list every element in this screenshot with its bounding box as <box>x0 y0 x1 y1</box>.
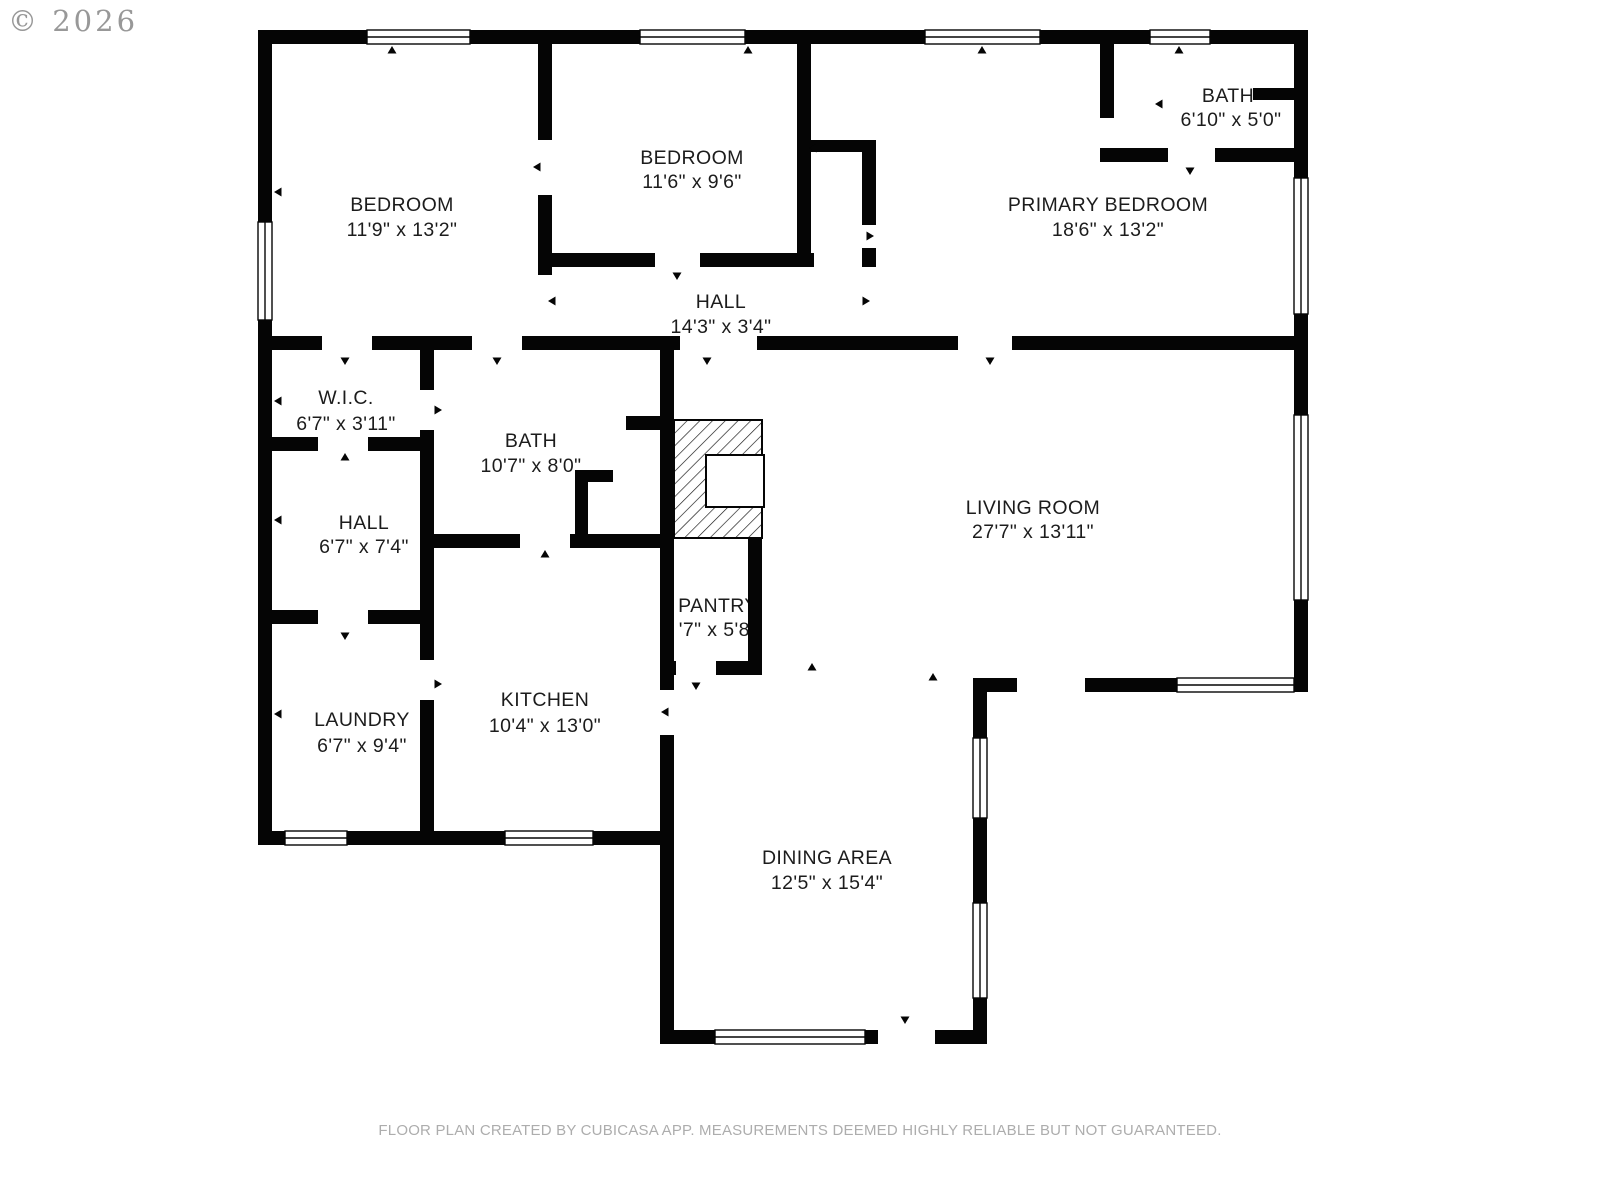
room-name: KITCHEN <box>501 689 589 711</box>
room-dims: 11'9" x 13'2" <box>347 219 458 241</box>
wall <box>660 1030 715 1044</box>
wall <box>935 1030 987 1044</box>
wall <box>1215 148 1308 162</box>
wall <box>748 538 762 675</box>
room-label-primary-bedroom: PRIMARY BEDROOM 18'6" x 13'2" <box>1008 194 1208 241</box>
room-name: BATH <box>1202 85 1254 107</box>
window <box>715 1030 865 1044</box>
room-label-hall-lower: HALL 6'7" x 7'4" <box>319 512 409 558</box>
wall <box>420 700 434 831</box>
room-dims: 27'7" x 13'11" <box>972 521 1094 543</box>
room-label-laundry: LAUNDRY 6'7" x 9'4" <box>314 709 410 757</box>
floor-plan-page: © 2026 BEDROOM 11'9" x 13'2" BEDROOM 11'… <box>0 0 1600 1200</box>
room-label-living-room: LIVING ROOM 27'7" x 13'11" <box>966 497 1100 543</box>
room-name: PRIMARY BEDROOM <box>1008 194 1208 216</box>
room-name: BEDROOM <box>640 147 744 169</box>
wall <box>258 610 318 624</box>
room-dims: '7" x 5'8" <box>679 619 757 641</box>
room-name: BATH <box>505 430 557 452</box>
window <box>258 222 272 320</box>
room-dims: 6'7" x 3'11" <box>296 413 395 435</box>
room-label-bath-2: BATH 10'7" x 8'0" <box>481 430 582 477</box>
room-label-hall-upper: HALL 14'3" x 3'4" <box>671 291 772 338</box>
room-dims: 6'7" x 7'4" <box>319 536 409 558</box>
window <box>367 30 470 44</box>
room-label-bedroom-1: BEDROOM 11'9" x 13'2" <box>347 194 458 241</box>
window <box>1294 415 1308 600</box>
wall <box>660 661 676 675</box>
room-name: LIVING ROOM <box>966 497 1100 519</box>
wall <box>258 336 322 350</box>
wall <box>973 678 987 738</box>
wall <box>420 534 520 548</box>
window <box>1150 30 1210 44</box>
wall <box>716 661 762 675</box>
wall <box>538 195 552 275</box>
wall <box>700 253 814 267</box>
window <box>640 30 745 44</box>
room-name: HALL <box>339 512 389 534</box>
room-dims: 10'4" x 13'0" <box>489 715 601 737</box>
fireplace <box>674 420 764 538</box>
wall <box>1012 336 1308 350</box>
room-name: LAUNDRY <box>314 709 410 731</box>
window <box>1294 178 1308 314</box>
wall <box>1253 88 1308 100</box>
wall <box>1085 678 1177 692</box>
room-dims: 6'10" x 5'0" <box>1181 109 1282 131</box>
wall <box>522 336 680 350</box>
window <box>285 831 347 845</box>
wall <box>862 248 876 267</box>
room-dims: 11'6" x 9'6" <box>642 171 741 193</box>
wall <box>1100 148 1168 162</box>
wall <box>1100 30 1114 118</box>
room-name: DINING AREA <box>762 847 892 869</box>
room-label-pantry: PANTRY '7" x 5'8" <box>678 595 758 641</box>
room-labels: BEDROOM 11'9" x 13'2" BEDROOM 11'6" x 9'… <box>296 85 1281 894</box>
wall <box>862 140 876 225</box>
wall <box>757 336 958 350</box>
wall <box>570 534 674 548</box>
window <box>505 831 593 845</box>
window <box>1177 678 1294 692</box>
fireplace-firebox <box>706 455 764 507</box>
room-label-wic: W.I.C. 6'7" x 3'11" <box>296 387 395 435</box>
room-label-bedroom-2: BEDROOM 11'6" x 9'6" <box>640 147 744 193</box>
room-name: HALL <box>696 291 746 313</box>
wall <box>258 437 318 451</box>
room-name: W.I.C. <box>318 387 373 409</box>
wall <box>973 818 987 903</box>
wall <box>865 1030 878 1044</box>
floor-plan-drawing: BEDROOM 11'9" x 13'2" BEDROOM 11'6" x 9'… <box>0 0 1600 1200</box>
room-name: BEDROOM <box>350 194 454 216</box>
room-dims: 14'3" x 3'4" <box>671 316 772 338</box>
wall <box>372 336 472 350</box>
window <box>973 903 987 998</box>
wall <box>797 30 811 267</box>
wall <box>420 350 434 390</box>
wall <box>660 350 674 690</box>
wall <box>660 735 674 1030</box>
room-dims: 12'5" x 15'4" <box>771 872 883 894</box>
room-dims: 6'7" x 9'4" <box>317 735 407 757</box>
room-dims: 10'7" x 8'0" <box>481 455 582 477</box>
wall <box>575 470 588 534</box>
room-dims: 18'6" x 13'2" <box>1052 219 1164 241</box>
room-label-dining-area: DINING AREA 12'5" x 15'4" <box>762 847 892 894</box>
wall <box>552 253 655 267</box>
room-name: PANTRY <box>678 595 758 617</box>
room-label-kitchen: KITCHEN 10'4" x 13'0" <box>489 689 601 737</box>
footer-disclaimer: FLOOR PLAN CREATED BY CUBICASA APP. MEAS… <box>0 1122 1600 1139</box>
wall <box>538 30 552 140</box>
window <box>925 30 1040 44</box>
window <box>973 738 987 818</box>
